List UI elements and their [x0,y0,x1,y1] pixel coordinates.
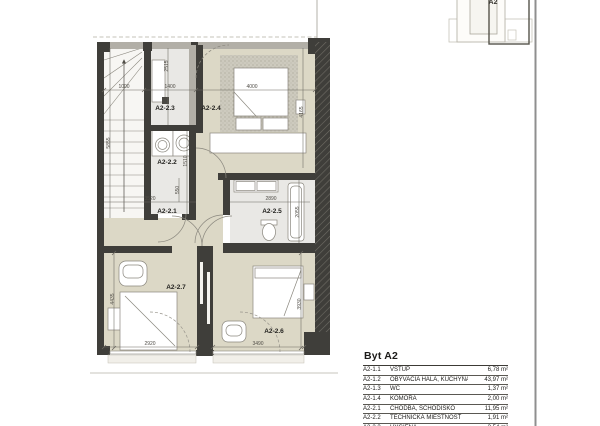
legend-row: A2-1.2 OBÝVACIA HALA, KUCHYŇA 43,97 m² [363,375,508,385]
dimension-label: 1510 [183,155,189,166]
pillow [236,118,261,130]
dimension-label: 2920 [144,341,155,347]
room-label: A2-2.3 [155,105,175,112]
nightstand [304,284,314,300]
room-label: A2-2.2 [157,159,177,166]
room-name: CHODBA, SCHODISKO [390,405,468,414]
room-code: A2-1.2 [363,376,390,385]
room-name: OBÝVACIA HALA, KUCHYŇA [390,376,468,385]
pillow [255,268,301,278]
dimension-label: 5855 [106,137,112,148]
room-label: A2-2.4 [201,105,221,112]
window-sill [213,355,304,363]
room-area: 11,95 m² [468,405,508,414]
room-label: A2-2.1 [157,208,177,215]
room-label: A2-2.5 [262,208,282,215]
room-area: 6,78 m² [468,366,508,375]
page: 1000 1400 4000 2515 5855 4165 1510 550 3… [0,0,600,426]
legend-table: Byt A2 A2-1.1 VSTUP 6,78 m² A2-1.2 OBÝVA… [363,350,508,426]
legend-row: A2-1.1 VSTUP 6,78 m² [363,365,508,375]
room-code: A2-2.1 [363,405,390,414]
dimension-label: 3490 [252,341,263,347]
room-label: A2-2.7 [166,284,186,291]
legend-title: Byt A2 [364,350,508,362]
room-code: A2-1.1 [363,366,390,375]
window-sill [108,355,196,363]
room-area: 43,97 m² [468,376,508,385]
bench [210,133,306,153]
dimension-label: 2055 [295,206,301,217]
room-name: VSTUP [390,366,468,375]
toilet [263,224,276,241]
room-code: A2-2.2 [363,414,390,423]
site-plan-inset: A2 [449,0,532,44]
dimension-label: 1000 [118,84,129,90]
dimension-label: 3520 [144,196,155,202]
dimension-label: 4000 [246,84,257,90]
dimension-label: 550 [175,186,181,195]
room-area: 1,37 m² [468,385,508,394]
pillow [263,118,288,130]
legend-row: A2-2.2 TECHNICKÁ MIESTNOSŤ 1,91 m² [363,413,508,423]
room-code: A2-1.3 [363,385,390,394]
legend-row: A2-1.3 WC 1,37 m² [363,384,508,394]
room-name: TECHNICKÁ MIESTNOSŤ [390,414,468,423]
legend-row: A2-2.1 CHODBA, SCHODISKO 11,95 m² [363,404,508,414]
dimension-label: 2890 [265,196,276,202]
floor-plan-svg: 1000 1400 4000 2515 5855 4165 1510 550 3… [0,0,600,426]
legend-rows: A2-1.1 VSTUP 6,78 m² A2-1.2 OBÝVACIA HAL… [363,365,508,426]
dimension-label: 2515 [164,60,170,71]
dimension-label: 1400 [164,84,175,90]
room-area: 1,91 m² [468,414,508,423]
roof-outline [93,0,317,40]
dimension-label: 3930 [297,298,303,309]
dimension-label: 4435 [110,293,116,304]
armchair [222,321,246,342]
room-code: A2-1.4 [363,395,390,404]
room-name: KOMORA [390,395,468,404]
legend-row: A2-1.4 KOMORA 2,00 m² [363,394,508,404]
dimension-label: 4165 [299,106,305,117]
room-label: A2-2.6 [264,328,284,335]
room-area: 2,00 m² [468,395,508,404]
windows [90,351,338,373]
inset-unit-label: A2 [489,0,498,6]
room-name: WC [390,385,468,394]
wardrobe-wall [197,246,213,353]
